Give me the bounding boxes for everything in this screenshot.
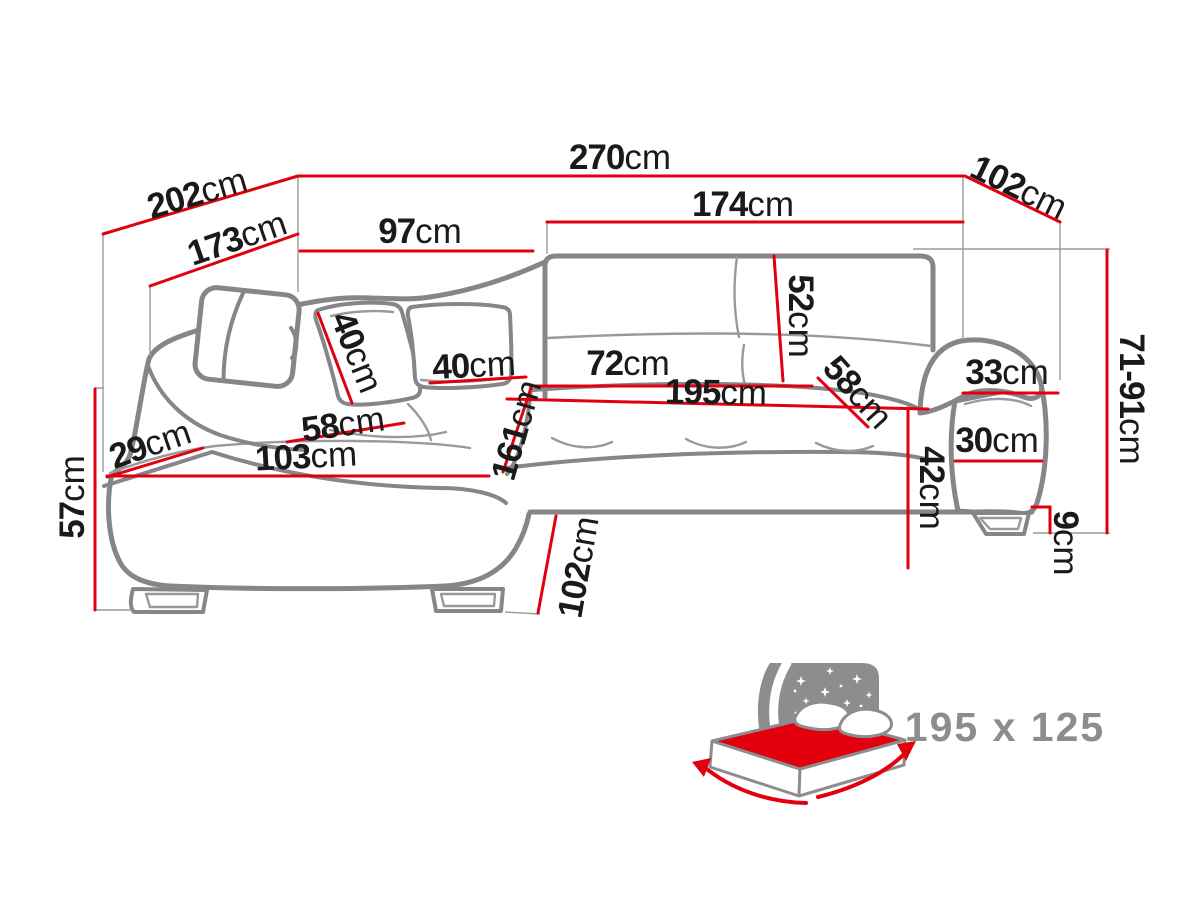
- dimension-97cm: 97cm: [300, 212, 533, 252]
- dim-label-30cm: 30cm: [955, 421, 1039, 460]
- dim-label-40cm-right: 40cm: [431, 343, 517, 386]
- dim-label-174cm: 174cm: [692, 185, 794, 224]
- dim-label-71-91cm: 71-91cm: [1113, 333, 1152, 464]
- sofa-dimension-diagram: 270cm 202cm 173cm 102cm 174cm 97cm 52cm: [0, 0, 1200, 900]
- sofa-bed-sleep-icon: 195 x 125: [692, 663, 1105, 803]
- bed-size-label: 195 x 125: [905, 704, 1105, 750]
- dim-label-97cm: 97cm: [378, 212, 462, 251]
- arrowhead-left: [692, 758, 711, 777]
- dimension-174cm: 174cm: [547, 185, 963, 224]
- dimension-33cm: 33cm: [963, 353, 1058, 394]
- dim-label-102cm-top: 102cm: [965, 147, 1074, 227]
- sofa-leg-chaise-left: [131, 589, 207, 612]
- dim-label-52cm: 52cm: [782, 274, 821, 358]
- dim-label-270cm: 270cm: [569, 138, 671, 177]
- dimension-9cm: 9cm: [1032, 507, 1086, 576]
- dim-label-9cm: 9cm: [1047, 510, 1086, 575]
- dim-label-42cm: 42cm: [913, 446, 952, 530]
- dim-label-72cm: 72cm: [586, 344, 670, 383]
- dimension-102cm-top: 102cm: [965, 147, 1074, 227]
- dimension-102cm-bottom: 102cm: [538, 513, 606, 620]
- dimension-270cm: 270cm: [298, 138, 963, 177]
- dimension-30cm: 30cm: [955, 421, 1042, 462]
- dim-label-33cm: 33cm: [965, 353, 1049, 392]
- dim-label-202cm: 202cm: [143, 160, 252, 226]
- dimension-57cm: 57cm: [53, 389, 96, 610]
- dim-label-57cm: 57cm: [53, 455, 92, 539]
- dim-label-195cm: 195cm: [665, 372, 768, 413]
- dim-label-173cm: 173cm: [182, 203, 291, 273]
- headrest: [194, 286, 301, 388]
- dim-label-102cm-bottom: 102cm: [550, 513, 606, 620]
- sofa-leg-right: [973, 513, 1029, 534]
- sofa-leg-chaise-right: [432, 589, 503, 611]
- dimension-71-91cm: 71-91cm: [1107, 250, 1152, 533]
